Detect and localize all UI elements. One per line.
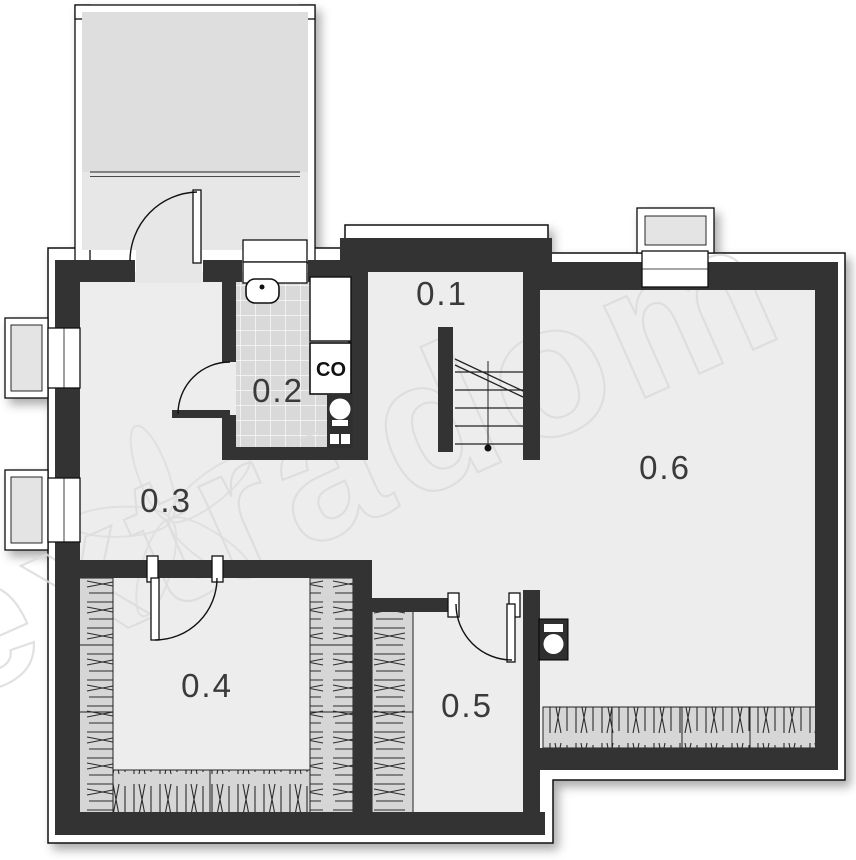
light-well-left-1-pit [11,325,42,391]
wall-bottom [55,812,545,835]
wall-bathroom-bottom [222,447,368,460]
bathroom-door-leaf [172,410,230,418]
room-label-0-4: 0.4 [181,667,233,704]
door-0-5-leaf [507,604,515,662]
door-0-4-leaf [151,578,159,640]
floor-plan-drawing: extradom [0,0,856,860]
wall-0-4-0-5-divider [353,560,372,813]
window-bathroom-sill [243,240,307,262]
boiler-co-label: CO [316,359,346,381]
wall-0-1-top [340,238,552,272]
light-well-top-pit [645,216,706,245]
entry-door-opening [136,250,202,283]
wall-right [815,262,838,770]
sink-drain [260,285,265,290]
room-label-0-6: 0.6 [639,449,691,486]
wall-0-1-right [523,245,540,460]
entry-door-leaf [193,190,201,263]
sink-icon [246,279,279,303]
annex-floor-upper [82,12,308,172]
hatch-0-4-bottom [113,770,310,813]
floor-plan-canvas: extradom [0,0,856,860]
room-label-0-5: 0.5 [441,687,493,724]
room-label-0-3: 0.3 [140,482,192,519]
wall-0-5-0-6-divider [523,590,540,813]
bathroom-door-opening [222,362,236,415]
light-well-left-2-pit [11,477,42,543]
stair-walk-line-start [485,445,492,452]
wall-0-5-top [368,598,458,612]
bathroom-cabinet [310,277,351,341]
room-label-0-2: 0.2 [252,372,304,409]
wall-stair-side [438,327,453,452]
bathroom-door-jamb-bottom [228,417,236,425]
room-label-0-1: 0.1 [416,275,468,312]
wall-0-6-bottom [540,748,838,770]
bathroom-door-jamb-top [228,354,236,362]
hatch-0-4-right [310,578,353,813]
